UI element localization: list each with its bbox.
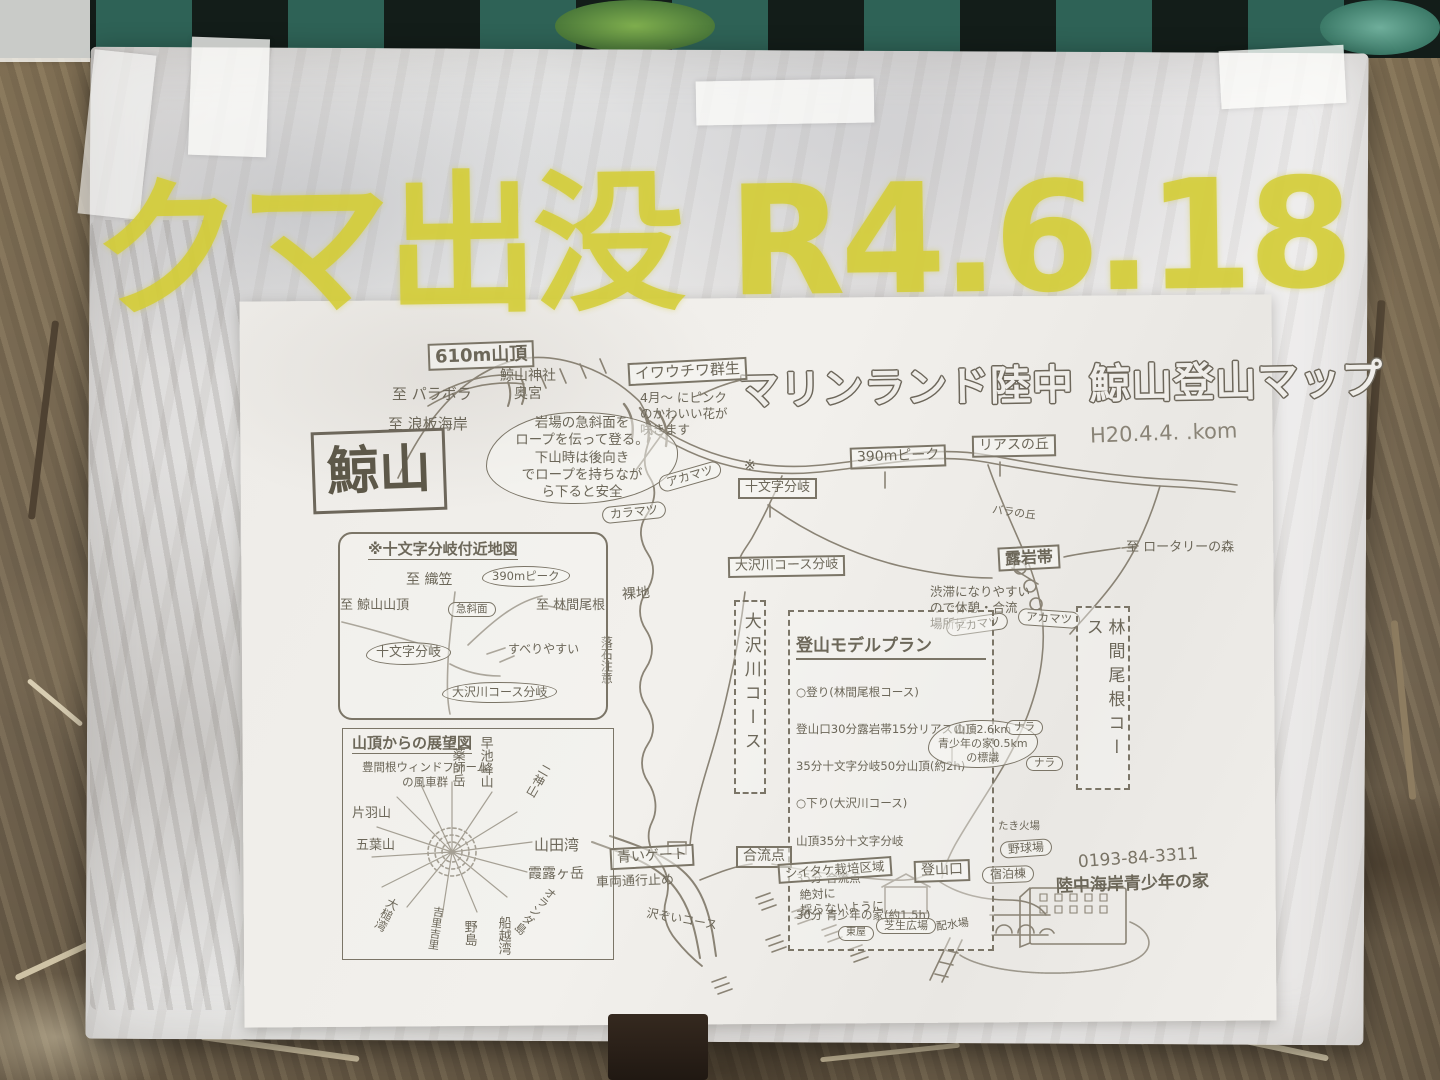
inset-to-summit: 至 鯨山山頂 (340, 598, 409, 615)
panorama-nojima: 野島 (460, 920, 477, 946)
panorama-hayachine: 早池峰山 (476, 736, 493, 788)
panorama-windfarm: 豊間根ウィンドファーム の風車群 (362, 760, 488, 789)
inset-to-rinkan: 至 林間尾根 (536, 598, 605, 615)
panorama-goyosan: 五葉山 (356, 838, 395, 855)
bare-ground-label: 裸地 (621, 585, 650, 605)
campfire-area-label: たき火場 (996, 820, 1042, 833)
do-not-pick-note: 絶対に 採らないように (799, 884, 884, 919)
inset-steep-slope: 急斜面 (448, 602, 496, 617)
panorama-yakushidake: 薬師岳 (448, 748, 465, 787)
lawn-plaza-label: 芝生広場 (876, 918, 936, 934)
tape (0, 0, 90, 62)
road-closed-note: 車両通行止め (596, 873, 675, 892)
map-title: マリンランド陸中 鯨山登山マップ (738, 348, 1249, 417)
blue-gate-sign: 青いゲート (609, 844, 694, 870)
rias-hill-sign: リアスの丘 (972, 434, 1056, 457)
sign-post (608, 1014, 708, 1080)
twig (27, 678, 84, 727)
twig (820, 1043, 960, 1063)
inset-title: ※十文字分岐付近地図 (368, 540, 518, 560)
kujirayama-name-box: 鯨山 (311, 428, 448, 515)
to-rotary-forest-label: 至 ロータリーの森 (1126, 540, 1234, 557)
trailhead-sign: 登山口 (914, 859, 971, 883)
osawa-course-fork-sign: 大沢川コース分岐 (728, 555, 846, 578)
reference-mark: ※ (744, 458, 756, 476)
twig (28, 320, 59, 519)
osawa-river-course-label: 大沢川コース (734, 600, 766, 794)
plan-title: 登山モデルプラン (796, 636, 986, 660)
twig (1391, 620, 1417, 800)
inset-slippery-note: すべりやすい (508, 642, 579, 657)
summit-610m-label: 610m山頂 (428, 340, 535, 371)
lodging-building-label: 宿泊棟 (982, 865, 1035, 884)
plan-line: ○登り(林間尾根コース) (796, 684, 986, 701)
plan-line: 山頂35分十文字分岐 (796, 833, 986, 850)
gazebo-label: 東屋 (838, 926, 874, 941)
rinkan-ridge-course-label: 林間尾根コース (1076, 606, 1130, 790)
inset-to-orikasa: 至 織笠 (406, 572, 452, 590)
panorama-yamadawan: 山田湾 (534, 836, 579, 855)
bear-warning-spray-text: クマ出没 R4.6.18 (91, 109, 1439, 348)
panorama-karogatake: 霞露ヶ岳 (528, 866, 584, 884)
to-parabola-label: 至 パラボラ (392, 385, 472, 404)
panorama-katabasan: 片羽山 (352, 806, 391, 823)
nara-tree-label: ナラ (1006, 720, 1043, 735)
nara-tree-label: ナラ (1026, 756, 1063, 771)
map-date-note: H20.4.4. .kom (1090, 417, 1238, 449)
photo-of-trail-map-sign: クマ出没 R4.6.18 マリンランド陸中 鯨山登山マップ H20.4.4. .… (0, 0, 1440, 1080)
peak-390m-sign: 390mピーク (850, 444, 947, 469)
jujimonji-junction-sign: 十文字分岐 (738, 478, 817, 499)
shrine-okumiya-label: 鯨山神社 奥宮 (500, 368, 556, 404)
tape (1219, 45, 1347, 109)
panorama-funakoshi-bay: 船越湾 (494, 916, 511, 955)
plan-line: ○下り(大沢川コース) (796, 795, 986, 812)
moss-patch (555, 0, 715, 52)
rock-outcrop-zone-sign: 露岩帯 (997, 544, 1060, 572)
